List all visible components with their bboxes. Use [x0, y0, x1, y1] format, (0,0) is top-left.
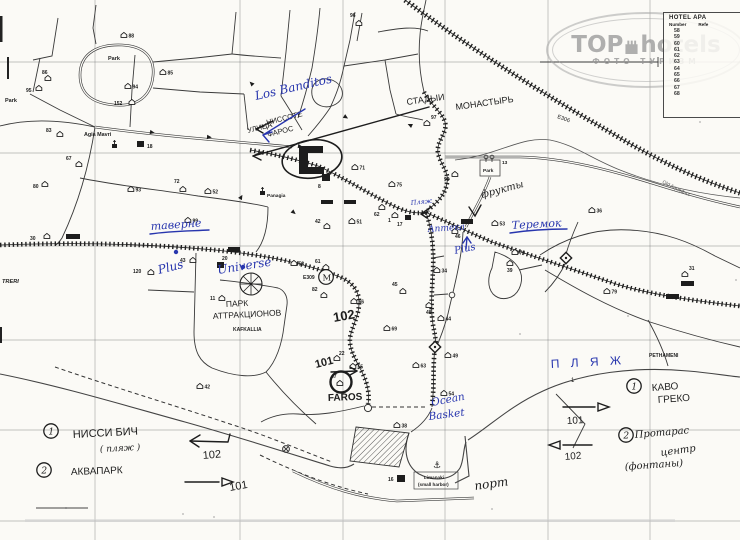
map-label-small-harbor: (small harbor) — [418, 482, 449, 487]
hotel-marker-number-95: 95 — [26, 88, 32, 94]
map-label-treri: TRERI — [2, 279, 19, 285]
hotel-marker-number-36: 36 — [597, 209, 603, 215]
blue-ink-dot — [241, 265, 245, 269]
hotel-marker-42 — [197, 383, 203, 388]
road-minor — [540, 57, 658, 67]
hotel-marker-30 — [44, 233, 50, 238]
building-square-18 — [137, 141, 144, 147]
hotel-marker-number-66: 66 — [359, 300, 365, 306]
ferris-wheel-hub — [250, 283, 253, 286]
hotel-marker-97 — [424, 120, 430, 125]
annotation-порт: порт — [473, 474, 509, 493]
road-direction-arrow — [291, 209, 298, 215]
hotel-marker-48 — [426, 302, 432, 307]
scan-speck — [627, 315, 629, 317]
scan-speck — [519, 333, 521, 335]
road-minor — [434, 294, 448, 295]
hotel-marker-number-47: 47 — [331, 374, 337, 380]
hotel-marker-number-62: 62 — [374, 212, 380, 218]
ferris-wheel-spoke — [251, 284, 259, 292]
annotation-102: 102 — [202, 448, 221, 462]
annotation-парк: ПАРК — [226, 298, 249, 309]
junction-diamond-dot — [565, 257, 567, 259]
hotel-marker-number-86: 86 — [42, 70, 48, 76]
hotel-marker-number-90: 90 — [444, 177, 450, 183]
annotation-нисси-бич: НИССИ БИЧ — [73, 426, 139, 441]
hotel-marker-120 — [148, 269, 154, 274]
road-minor — [153, 54, 232, 62]
hotel-marker-43 — [190, 257, 196, 262]
hotel-marker-number-42: 42 — [315, 219, 321, 225]
hotel-marker-number-11: 11 — [210, 296, 216, 302]
hotel-marker-83 — [57, 131, 63, 136]
hotel-marker-1 — [392, 212, 398, 217]
road-minor — [232, 54, 281, 58]
hotel-table-col-ref: Refe — [698, 22, 708, 27]
scan-speck — [491, 508, 493, 510]
road-minor — [519, 265, 542, 270]
road-minor — [244, 94, 248, 130]
scan-speck — [735, 279, 737, 281]
road-minor — [357, 13, 362, 41]
hotel-marker-number-94: 94 — [133, 85, 139, 91]
hotel-table-row: 68 — [664, 91, 740, 97]
hotel-marker-63 — [413, 362, 419, 367]
hotel-marker-51 — [349, 218, 355, 223]
map-label-pethameni: PETHAMENI — [649, 353, 679, 359]
hotel-marker-number-55: 55 — [358, 365, 364, 371]
map-label-panagia: Panagia — [267, 193, 286, 199]
scan-speck — [699, 121, 701, 123]
hotel-marker-88 — [121, 32, 127, 37]
pier-hatched-area — [350, 427, 409, 467]
road-minor — [545, 270, 740, 347]
legend-number-1: 1 — [631, 382, 637, 392]
road-minor — [232, 12, 236, 54]
hotel-marker-number-42: 42 — [205, 385, 211, 391]
building-square — [681, 281, 694, 286]
map-label-park: Park — [108, 56, 121, 62]
road-dashed — [55, 367, 332, 462]
hotel-marker-38 — [394, 422, 400, 427]
church-cross-icon — [113, 140, 116, 144]
building-square-16 — [397, 475, 405, 482]
road-minor — [266, 372, 316, 424]
hotel-marker-95 — [36, 85, 42, 90]
hotel-marker-71 — [352, 164, 358, 169]
hotel-marker-number-22: 22 — [339, 351, 345, 357]
hotel-marker-39 — [507, 260, 513, 265]
building-square — [66, 234, 80, 239]
hotel-marker-66 — [351, 298, 357, 303]
hotel-marker-number-53: 53 — [500, 222, 506, 228]
hotel-marker-79 — [604, 288, 610, 293]
hotel-marker-90 — [452, 171, 458, 176]
map-label-limanaki: Limanaki — [424, 475, 444, 480]
legend-number-2: 2 — [622, 431, 629, 441]
road-minor — [385, 60, 396, 114]
hotel-table-header: Number Refe — [669, 22, 740, 27]
building-square-number-18: 18 — [147, 144, 153, 150]
road-minor — [56, 127, 95, 245]
hotel-marker-number-52: 52 — [213, 190, 219, 196]
hotel-marker-number-63: 63 — [421, 364, 427, 370]
coastline — [455, 436, 469, 483]
hand-arrow — [598, 403, 609, 411]
hotel-marker-number-34: 34 — [442, 269, 448, 275]
hotel-marker-152 — [129, 99, 135, 104]
hand-arrow — [549, 441, 560, 449]
hotel-marker-69 — [384, 325, 390, 330]
hotel-marker-82 — [321, 292, 327, 297]
road-minor — [344, 54, 418, 66]
hotel-marker-67 — [76, 161, 82, 166]
hotel-marker-85 — [160, 69, 166, 74]
annotation-1: 1 — [571, 378, 575, 384]
church-cross-icon — [261, 187, 264, 191]
scanned-tourist-map: ⚓M96888594869515283678093725297717562425… — [0, 0, 740, 540]
building-square-number-17: 17 — [397, 222, 403, 228]
hotel-marker-44 — [438, 315, 444, 320]
hotel-marker-53 — [492, 220, 498, 225]
annotation-los-banditos: Los Banditos — [253, 72, 334, 104]
hotel-marker-number-71: 71 — [360, 166, 366, 172]
building-square-17 — [405, 215, 411, 220]
map-label-park: Park — [5, 98, 18, 104]
hotel-marker-80 — [42, 181, 48, 186]
map-label-e309: E309 — [303, 275, 315, 281]
church-icon — [260, 191, 265, 195]
map-label-old-aqueduct: Old Aqueduct — [661, 179, 691, 198]
hotel-marker-number-80: 80 — [33, 184, 39, 190]
hotel-marker-number-67: 67 — [66, 156, 72, 162]
road-minor — [93, 5, 96, 44]
hotel-table-title: HOTEL APA — [669, 15, 740, 21]
scan-artifact — [0, 16, 3, 42]
annotation-plus: Plus — [452, 242, 476, 257]
building-square-number-16: 16 — [388, 477, 394, 483]
annotation-пляж: ( пляж ) — [100, 442, 141, 455]
hotel-marker-number-30: 30 — [30, 236, 36, 242]
scan-speck — [213, 516, 215, 518]
annotation-102: 102 — [564, 451, 582, 463]
map-label-agia-mavri: Agia Mavri — [84, 132, 112, 138]
blue-ink-dot — [174, 250, 178, 254]
hotel-marker-number-45: 45 — [392, 282, 398, 288]
annotation-basket: Basket — [427, 407, 466, 424]
cul-de-sac — [449, 292, 455, 298]
hotel-marker-number-152: 152 — [114, 101, 123, 107]
road-minor — [256, 207, 268, 252]
road-main-hatched — [0, 244, 369, 404]
annotation-протарас: Протарас — [633, 425, 690, 441]
hotel-marker-number-70: 70 — [520, 251, 526, 257]
road-direction-arrow — [343, 114, 349, 120]
coastline — [0, 374, 354, 468]
ferris-wheel-spoke — [251, 276, 259, 284]
hotel-marker-number-72: 72 — [174, 179, 180, 185]
annotation-монастырь: МОНАСТЫРЬ — [455, 94, 514, 112]
annotation-п-л-я-ж: П Л Я Ж — [550, 353, 625, 371]
hotel-marker-number-51: 51 — [357, 220, 363, 226]
monument-letter: M — [323, 274, 332, 284]
hotel-marker-52 — [205, 188, 211, 193]
hotel-marker-94 — [125, 83, 131, 88]
road-minor — [0, 121, 95, 127]
hotel-marker-11 — [219, 295, 225, 300]
annotation-102: 102 — [332, 306, 356, 325]
hotel-reference-table: HOTEL APA Number Refe 585960616263646566… — [663, 12, 740, 118]
hotel-marker-58 — [291, 260, 297, 265]
annotation-аквапарк: АКВАПАРК — [71, 465, 123, 478]
scan-artifact — [0, 327, 2, 343]
hotel-marker-36 — [589, 207, 595, 212]
hotel-marker-number-88: 88 — [129, 34, 135, 40]
building-square — [228, 247, 240, 252]
hotel-marker-75 — [389, 181, 395, 186]
hotel-marker-42 — [324, 223, 330, 228]
annotation-plus: Plus — [155, 257, 184, 277]
annotation-ниссоте: НИССОТЕ — [265, 109, 303, 127]
map-label-kafkallia: KAFKALLIA — [233, 327, 262, 333]
annotation-каво: КАВО — [651, 381, 679, 394]
hotel-marker-45 — [400, 288, 406, 293]
scan-speck — [182, 513, 184, 515]
map-canvas: ⚓M96888594869515283678093725297717562425… — [0, 0, 740, 540]
hotel-marker-number-75: 75 — [397, 183, 403, 189]
annotation-101: 101 — [567, 415, 585, 427]
hotel-marker-number-31: 31 — [689, 266, 695, 272]
road-minor — [344, 12, 355, 66]
hotel-marker-number-120: 120 — [133, 269, 142, 275]
legend-number-2: 2 — [40, 466, 47, 476]
hotel-marker-number-46: 46 — [455, 234, 461, 240]
annotation-аттракционов: АТТРАКЦИОНОВ — [213, 307, 282, 321]
hotel-marker-31 — [682, 271, 688, 276]
roundabout — [364, 404, 371, 411]
road-minor — [148, 290, 194, 292]
map-label-park: Park — [483, 168, 494, 174]
annotation-греко: ГРЕКО — [657, 393, 690, 406]
building-square — [321, 200, 333, 204]
building-square — [344, 200, 356, 204]
hotel-marker-number-48: 48 — [426, 310, 432, 316]
church-icon — [112, 144, 117, 148]
hotel-marker-49 — [445, 352, 451, 357]
road-direction-arrow — [407, 122, 413, 128]
hotel-marker-number-58: 58 — [299, 262, 305, 268]
legend-number-1: 1 — [48, 427, 54, 437]
building-square-number-8: 8 — [318, 184, 321, 190]
hotel-table-col-number: Number — [669, 22, 686, 27]
hotel-marker-number-97: 97 — [431, 115, 437, 121]
annotation-центр: центр — [660, 443, 697, 459]
landmark-building — [299, 146, 324, 174]
hotel-marker-number-93: 93 — [136, 188, 142, 194]
road-minor — [540, 230, 740, 268]
road-minor — [489, 252, 522, 299]
map-label-13: 13 — [502, 160, 508, 166]
building-square-8 — [322, 174, 330, 181]
beach-marker-x — [284, 447, 288, 451]
road-minor — [153, 88, 244, 94]
annotation-стадыи: СТАДЫИ — [406, 92, 445, 107]
road-direction-arrow — [248, 80, 255, 87]
hotel-marker-number-83: 83 — [46, 128, 52, 134]
hotel-marker-number-69: 69 — [392, 327, 398, 333]
annotation-faros: FAROS — [328, 392, 363, 404]
road-minor — [419, 0, 426, 92]
hotel-marker-number-82: 82 — [312, 287, 318, 293]
road-minor — [261, 406, 364, 422]
scan-artifact — [7, 57, 9, 79]
hotel-table-rows: 5859606162636465666768 — [664, 28, 740, 97]
scan-shadow — [25, 519, 675, 522]
building-square — [666, 294, 679, 299]
road-direction-arrow — [238, 194, 244, 200]
annotation-101: 101 — [314, 355, 335, 371]
hotel-marker-61 — [323, 264, 329, 269]
hotel-marker-number-38: 38 — [402, 424, 408, 430]
ferris-wheel-spoke — [243, 284, 251, 292]
hotel-marker-number-85: 85 — [168, 71, 174, 77]
road-double-fill — [80, 45, 153, 105]
hotel-marker-number-44: 44 — [446, 317, 452, 323]
hotel-marker-number-1: 1 — [388, 218, 391, 224]
map-label-e306: E306 — [556, 114, 570, 124]
hotel-marker-number-39: 39 — [507, 268, 513, 274]
road-minor — [130, 55, 135, 127]
hand-arrow — [331, 371, 357, 372]
road-minor — [298, 8, 320, 118]
hotel-marker-86 — [45, 75, 51, 80]
hotel-marker-62 — [379, 204, 385, 209]
road-minor — [33, 18, 58, 60]
hotel-marker-number-96: 96 — [350, 13, 356, 19]
junction-diamond-dot — [434, 346, 436, 348]
hotel-marker-70 — [512, 249, 518, 254]
hotel-marker-number-49: 49 — [453, 354, 459, 360]
hotel-marker-number-79: 79 — [612, 290, 618, 296]
annotation-фонтаны: (фонтаны) — [624, 458, 683, 473]
hotel-marker-34 — [434, 267, 440, 272]
road-double — [80, 45, 153, 105]
anchor-icon: ⚓ — [433, 461, 441, 471]
hotel-marker-number-61: 61 — [315, 259, 321, 265]
hotel-marker-72 — [180, 186, 186, 191]
hotel-marker-47 — [337, 380, 343, 385]
